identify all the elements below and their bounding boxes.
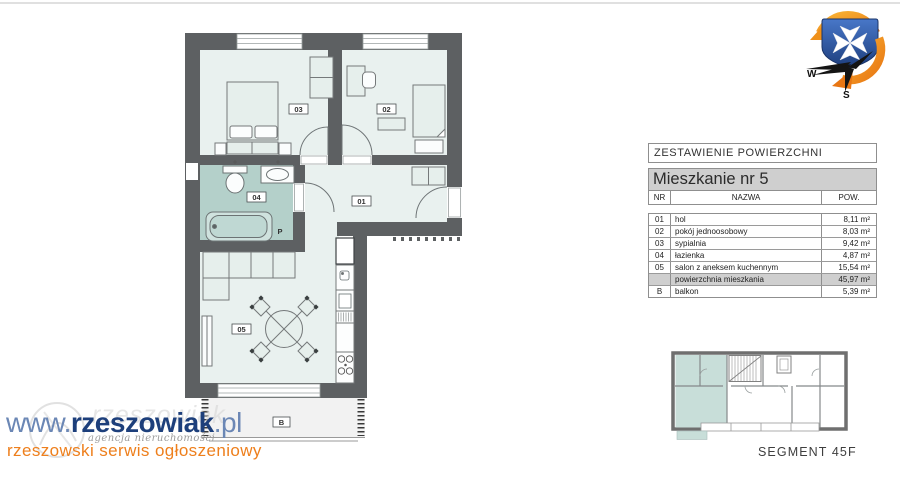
- nightstand: [279, 143, 291, 155]
- table-row-02: 02 pokój jednoosobowy 8,03 m²: [649, 226, 876, 238]
- elevator-shaft: [777, 356, 791, 373]
- dresser: [378, 118, 405, 130]
- table-row-05: 05 salon z aneksem kuchennym 15,54 m²: [649, 262, 876, 274]
- col-header-nr: NR: [649, 191, 671, 204]
- label-room-03: 03: [294, 105, 302, 114]
- label-room-05: 05: [237, 325, 245, 334]
- table-row-03: 03 sypialnia 9,42 m²: [649, 238, 876, 250]
- window-room-02: [363, 34, 428, 49]
- window-room-03: [237, 34, 302, 49]
- toilet-bowl: [226, 173, 244, 193]
- col-header-nazwa: NAZWA: [671, 191, 822, 204]
- area-table-body: 01 hol 8,11 m² 02 pokój jednoosobowy 8,0…: [648, 213, 877, 298]
- table-header-row: NR NAZWA POW.: [649, 191, 876, 204]
- col-header-pow: POW.: [822, 191, 876, 204]
- kitchen-annex: [336, 238, 354, 383]
- label-washer: P: [277, 227, 282, 236]
- compass-west-label: W: [807, 69, 817, 80]
- table-row-total: powierzchnia mieszkania 45,97 m²: [649, 274, 876, 286]
- watermark-url-prefix: www.: [6, 407, 71, 438]
- watermark-url-suffix: .pl: [214, 407, 242, 438]
- floorplan-page: { "header": { "top_rule_color": "#e0e0e0…: [0, 0, 900, 481]
- key-plan: [673, 353, 846, 440]
- hol-furniture: [412, 167, 445, 185]
- toilet-tank: [223, 166, 247, 173]
- table-row-01: 01 hol 8,11 m²: [649, 214, 876, 226]
- single-bed: [413, 85, 445, 137]
- compass-logo: W S: [806, 15, 881, 101]
- table-row-balcony: B balkon 5,39 m²: [649, 286, 876, 297]
- label-room-01: 01: [357, 197, 365, 206]
- label-balcony: B: [279, 418, 285, 427]
- area-table: ZESTAWIENIE POWIERZCHNI Mieszkanie nr 5 …: [648, 143, 877, 298]
- compass-south-label: S: [843, 90, 850, 101]
- watermark-tagline: rzeszowski serwis ogłoszeniowy: [7, 441, 262, 461]
- segment-caption: SEGMENT 45F: [758, 445, 857, 459]
- window-room-05: [218, 384, 320, 397]
- label-room-04: 04: [252, 193, 261, 202]
- chair: [363, 72, 376, 88]
- label-room-02: 02: [382, 105, 390, 114]
- shaft: [336, 238, 354, 264]
- apartment-title: Mieszkanie nr 5: [649, 169, 876, 191]
- table-row-04: 04 łazienka 4,87 m²: [649, 250, 876, 262]
- nightstand: [215, 143, 226, 155]
- area-table-title: ZESTAWIENIE POWIERZCHNI: [648, 143, 877, 163]
- highlighted-unit: [676, 355, 727, 428]
- fridge: [339, 294, 351, 308]
